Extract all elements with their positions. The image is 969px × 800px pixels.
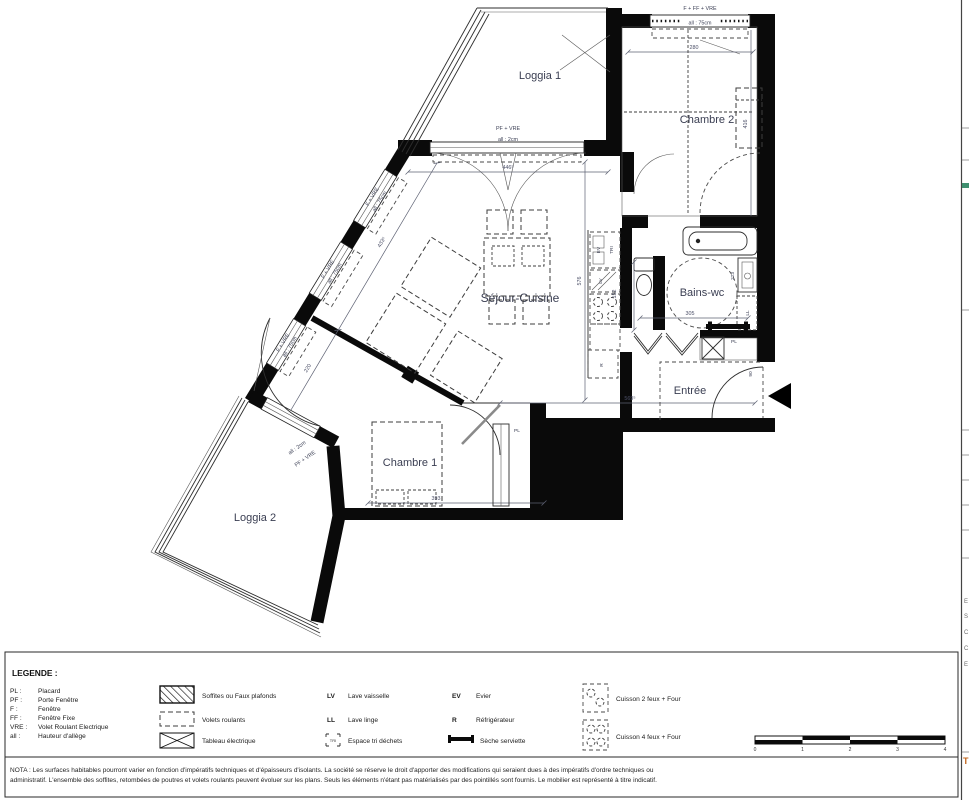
chambre2-window-label: F + FF + VRE: [683, 6, 717, 12]
bathtub: [683, 227, 757, 255]
svg-text:FF :: FF :: [10, 715, 22, 722]
svg-text:LV: LV: [598, 277, 604, 283]
dim-chambre1: 393: [366, 496, 547, 506]
svg-text:446⁵: 446⁵: [502, 165, 513, 171]
dim-sejour-top: 446⁵: [406, 165, 611, 175]
legend-title: LEGENDE :: [12, 668, 58, 678]
legend-appliance-codes: LV Lave vaisselle LL Lave linge TRI Espa…: [326, 693, 403, 746]
hall-opening-arc: [634, 154, 674, 194]
bath-cabinet: 223: [730, 258, 757, 292]
loggia1-door-label: PF + VRE: [496, 126, 521, 132]
dining-set: [484, 210, 550, 324]
svg-text:Porte Fenêtre: Porte Fenêtre: [38, 697, 79, 704]
rolling-shutter-icon: [160, 712, 194, 726]
logo-mark: [962, 183, 969, 188]
entry-door-swing: [712, 367, 763, 418]
svg-text:3: 3: [896, 747, 899, 753]
room-label-entree: Entrée: [674, 385, 706, 397]
sliver-tab-label: T: [963, 756, 969, 766]
legend-symbols: Soffites ou Faux plafonds Volets roulant…: [160, 686, 277, 748]
room-label-loggia2: Loggia 2: [234, 512, 276, 524]
chambre1-door: [450, 405, 500, 455]
svg-text:Volet Roulant Electrique: Volet Roulant Electrique: [38, 724, 109, 731]
svg-text:LL: LL: [745, 310, 751, 316]
dim-entry-door: 90: [748, 371, 754, 377]
svg-text:220: 220: [303, 363, 313, 374]
legend-cooking: Cuisson 2 feux + Four Cuisson 4 feux + F…: [583, 684, 681, 750]
towel-dryer-icon: [448, 735, 474, 743]
svg-text:280: 280: [690, 45, 699, 51]
svg-text:Réfrigérateur: Réfrigérateur: [476, 717, 515, 724]
svg-text:Soffites ou Faux plafonds: Soffites ou Faux plafonds: [202, 693, 277, 700]
toilet: [634, 258, 654, 296]
svg-text:R: R: [452, 717, 457, 724]
walls: [245, 8, 775, 622]
scale-bar: 0 1 2 3 4: [754, 736, 947, 753]
room-entree: Entrée 90: [660, 362, 791, 420]
svg-text:Cuisson 2 feux + Four: Cuisson 2 feux + Four: [616, 696, 681, 703]
loggia2-door-label: PF + VRE: [294, 450, 318, 469]
room-chambre1: Chambre 1 393 PL: [366, 405, 547, 506]
hall: PL: [700, 337, 757, 360]
wc-folding-door: [634, 333, 662, 354]
legend-abbreviations: PL : Placard PF : Porte Fenêtre F : Fenê…: [10, 688, 109, 740]
hall-closet: [700, 338, 757, 360]
svg-text:Evier: Evier: [476, 693, 492, 700]
svg-text:433⁵: 433⁵: [377, 236, 388, 249]
svg-text:1: 1: [801, 747, 804, 753]
nota-line2: administratif. L'ensemble des soffites, …: [10, 777, 657, 784]
room-label-chambre2: Chambre 2: [680, 114, 734, 126]
chambre1-closet: PL: [493, 424, 520, 506]
room-label-loggia1: Loggia 1: [519, 70, 561, 82]
floor-plan-svg: Loggia 1 PF + VRE all : 2cm 446⁵ F + FF: [0, 0, 969, 800]
svg-text:E: E: [964, 662, 968, 668]
room-label-chambre1: Chambre 1: [383, 457, 437, 469]
svg-text:F :: F :: [10, 706, 18, 713]
cooktop4-icon: [583, 720, 608, 750]
nota-box: NOTA : Les surfaces habitables pourront …: [5, 757, 958, 797]
room-label-sejour: Séjour-Cuisine: [481, 291, 560, 305]
svg-text:393: 393: [432, 496, 441, 502]
waste-sorting-icon: TRI: [326, 734, 340, 746]
svg-text:Cuisson 4 feux + Four: Cuisson 4 feux + Four: [616, 734, 681, 741]
svg-text:TRI: TRI: [330, 738, 336, 743]
svg-text:Tableau électrique: Tableau électrique: [202, 738, 256, 745]
dim-sejour-height: 576: [577, 160, 588, 403]
soffit-hatch-icon: [160, 686, 194, 703]
svg-text:Sèche serviette: Sèche serviette: [480, 738, 526, 745]
hall-closet-label: PL: [731, 339, 737, 345]
svg-text:E: E: [964, 599, 968, 605]
svg-text:LL: LL: [327, 717, 335, 724]
svg-text:223: 223: [730, 272, 736, 280]
kitchen-dishwasher: LV: [590, 270, 620, 292]
svg-text:Placard: Placard: [38, 688, 61, 695]
dim-chambre2-width: 280: [626, 45, 756, 55]
cooktop2-icon: [583, 684, 608, 712]
loggia2-door-sill: all : 2cm: [287, 440, 307, 457]
svg-text:EV: EV: [452, 693, 461, 700]
svg-text:PL: PL: [514, 428, 520, 434]
room-chambre2: F + FF + VRE all : 75cm 280 416 Chambre …: [622, 6, 762, 216]
kitchen: EV TRI LV R: [588, 230, 620, 378]
room-loggia1: Loggia 1 PF + VRE all : 2cm 446⁵: [398, 8, 611, 231]
legend-appliance-codes2: EV Evier R Réfrigérateur Sèche serviette: [448, 693, 526, 745]
bains-folding-door: [666, 333, 698, 355]
loggia1-door-sill: all : 2cm: [498, 137, 519, 143]
svg-text:Espace tri déchets: Espace tri déchets: [348, 738, 403, 745]
svg-text:0: 0: [754, 747, 757, 753]
floor-plan-sheet: Loggia 1 PF + VRE all : 2cm 446⁵ F + FF: [0, 0, 969, 800]
svg-text:2: 2: [849, 747, 852, 753]
kitchen-counter: [590, 324, 620, 350]
svg-text:576: 576: [577, 277, 583, 286]
loggia1-railing: [398, 8, 610, 156]
entrance-arrow-icon: [768, 383, 791, 409]
loggia1-door-window: [430, 142, 586, 231]
svg-text:305: 305: [686, 311, 695, 317]
facade-window-1: F + VRE all : 75cm: [354, 169, 408, 234]
svg-text:Fenêtre Fixe: Fenêtre Fixe: [38, 715, 75, 722]
svg-text:Volets roulants: Volets roulants: [202, 717, 246, 724]
svg-text:PF :: PF :: [10, 697, 22, 704]
svg-text:TRI: TRI: [609, 246, 615, 254]
svg-text:C: C: [964, 630, 969, 636]
svg-text:R: R: [599, 363, 605, 367]
nota-line1: NOTA : Les surfaces habitables pourront …: [10, 767, 654, 774]
svg-text:Lave vaisselle: Lave vaisselle: [348, 693, 390, 700]
svg-text:Hauteur d'allège: Hauteur d'allège: [38, 733, 86, 740]
svg-text:4: 4: [944, 747, 947, 753]
room-label-bains: Bains-wc: [680, 287, 725, 299]
room-loggia2: Loggia 2 all : 2cm PF + VRE: [151, 318, 321, 637]
svg-text:569⁵: 569⁵: [624, 396, 635, 402]
svg-text:Fenêtre: Fenêtre: [38, 706, 61, 713]
kitchen-sink: EV TRI: [590, 232, 620, 268]
dim-chambre2-depth: 416: [743, 30, 751, 216]
title-block-sliver: E S C C E T: [962, 0, 969, 800]
sofa-set: [366, 237, 502, 403]
svg-text:PL :: PL :: [10, 688, 22, 695]
kitchen-fridge: R: [588, 350, 618, 378]
svg-text:S: S: [964, 614, 968, 620]
electrical-panel: [702, 337, 724, 359]
svg-text:C: C: [964, 646, 969, 652]
electrical-panel-icon: [160, 733, 194, 748]
chambre2-window-sill: all : 75cm: [688, 21, 712, 27]
svg-text:416: 416: [743, 120, 749, 129]
svg-text:LV: LV: [327, 693, 336, 700]
svg-text:152: 152: [612, 290, 618, 299]
svg-text:EV: EV: [596, 246, 602, 253]
legend: LEGENDE : PL : Placard PF : Porte Fenêtr…: [5, 652, 958, 757]
svg-text:all :: all :: [10, 733, 20, 740]
svg-text:VRE :: VRE :: [10, 724, 27, 731]
svg-text:Lave linge: Lave linge: [348, 717, 378, 724]
facade-window-2: F + VRE all : 75cm: [309, 242, 363, 307]
